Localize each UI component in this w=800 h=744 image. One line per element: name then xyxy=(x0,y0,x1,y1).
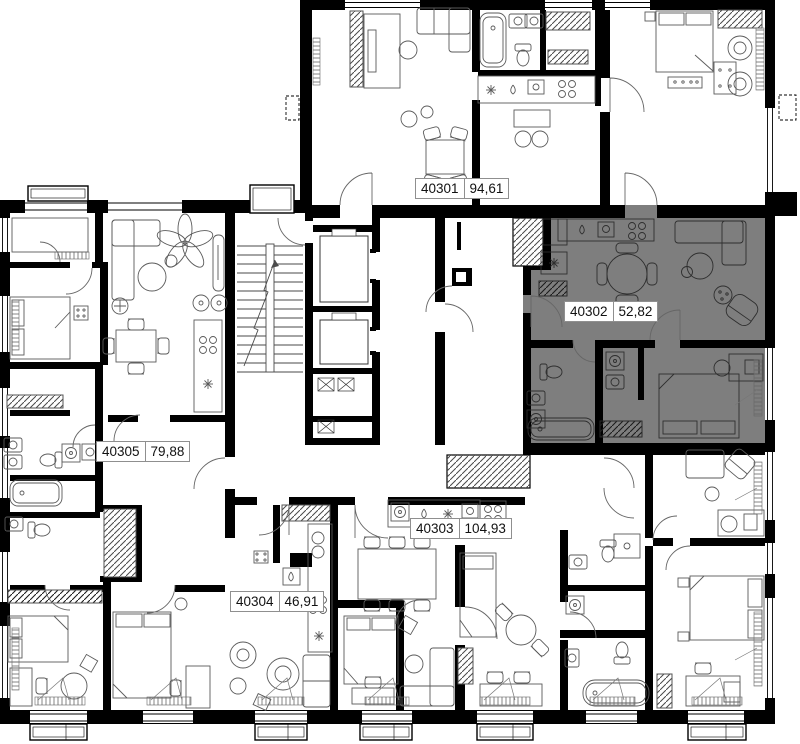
unit-label-40301[interactable]: 4030194,61 xyxy=(415,178,509,199)
unit-label-40305[interactable]: 4030579,88 xyxy=(96,441,190,462)
unit-40301-furniture xyxy=(350,8,762,189)
unit-number: 40302 xyxy=(565,302,614,321)
unit-area: 94,61 xyxy=(465,179,509,198)
unit-label-40302[interactable]: 4030252,82 xyxy=(564,301,658,322)
wall-notch xyxy=(456,272,466,282)
elevators xyxy=(318,229,380,433)
shaft-ducts xyxy=(318,378,354,433)
unit-number: 40304 xyxy=(231,592,280,611)
ac-units xyxy=(286,95,796,120)
unit-area: 79,88 xyxy=(146,442,190,461)
unit-label-40303[interactable]: 40303104,93 xyxy=(410,518,512,539)
unit-number: 40301 xyxy=(416,179,465,198)
unit-area: 46,91 xyxy=(280,592,324,611)
door-leaf xyxy=(457,222,461,250)
stairs xyxy=(237,244,303,372)
unit-40302-highlight[interactable] xyxy=(523,205,775,455)
unit-area: 104,93 xyxy=(460,519,511,538)
unit-number: 40305 xyxy=(97,442,146,461)
unit-40303-furniture xyxy=(344,447,764,708)
floor-plan: 4030194,61 4030252,82 40303104,93 403044… xyxy=(0,0,800,744)
plant-icon xyxy=(155,214,214,271)
unit-label-40304[interactable]: 4030446,91 xyxy=(230,591,324,612)
floor-plan-drawing xyxy=(0,0,800,744)
unit-number: 40303 xyxy=(411,519,460,538)
unit-area: 52,82 xyxy=(614,302,658,321)
